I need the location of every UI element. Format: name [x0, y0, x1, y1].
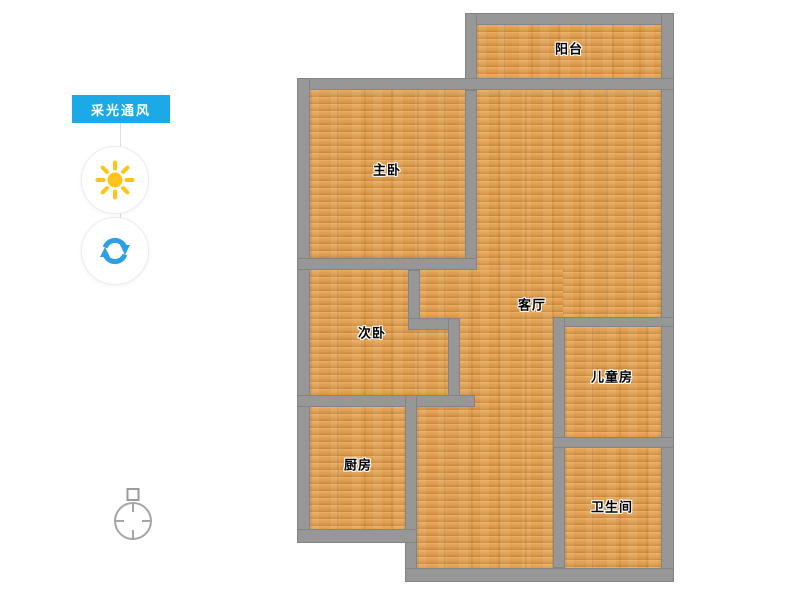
floorplan-viewer: 阳台 主卧 客厅 次卧 儿童房 厨房 卫生间 采光通风	[0, 0, 800, 600]
refresh-icon	[97, 233, 133, 269]
wall-segment	[465, 90, 477, 270]
room-floor-hallway	[417, 270, 563, 568]
room-label-second: 次卧	[358, 323, 386, 342]
wall-segment	[297, 78, 674, 90]
room-label-kitchen: 厨房	[344, 455, 372, 474]
wall-segment	[405, 395, 417, 582]
wall-segment	[297, 78, 310, 543]
wall-segment	[553, 437, 674, 448]
room-label-master: 主卧	[373, 160, 401, 179]
rotate-refresh-button[interactable]	[81, 217, 149, 285]
wall-segment	[661, 13, 674, 582]
wall-segment	[297, 258, 477, 270]
room-label-bathroom: 卫生间	[591, 497, 633, 516]
sun-icon	[95, 160, 135, 200]
wall-segment	[465, 13, 674, 25]
lighting-ventilation-badge[interactable]: 采光通风	[72, 95, 170, 123]
room-label-balcony: 阳台	[555, 39, 583, 58]
daylight-button[interactable]	[81, 146, 149, 214]
room-label-living: 客厅	[518, 295, 546, 314]
compass-icon	[110, 486, 156, 547]
wall-segment	[405, 568, 674, 582]
wall-segment	[297, 395, 475, 407]
wall-segment	[448, 318, 460, 407]
wall-segment	[297, 529, 417, 543]
wall-segment	[553, 317, 674, 327]
room-label-kids: 儿童房	[591, 367, 633, 386]
